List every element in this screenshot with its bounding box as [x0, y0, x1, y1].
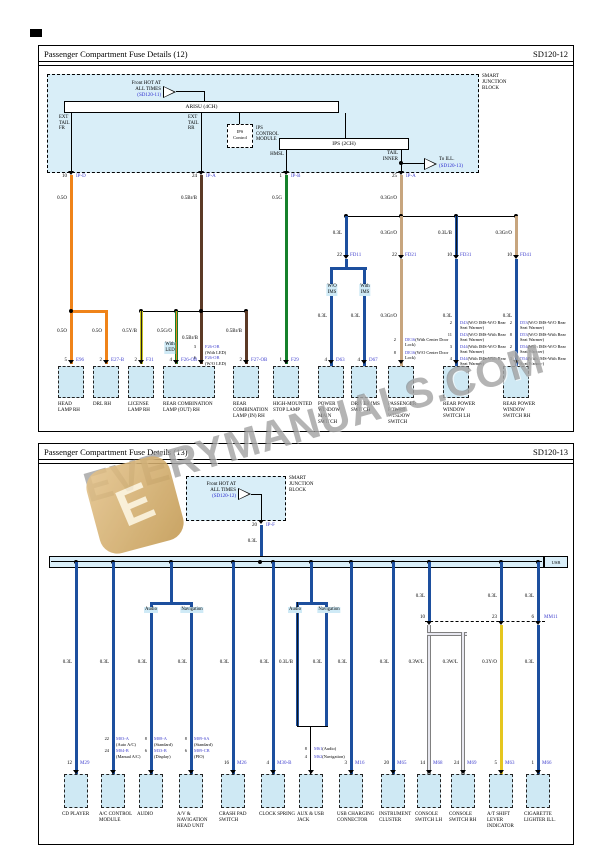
pin-number: 4: [358, 358, 361, 364]
panel-title: Passenger Compartment Fuse Details (12): [44, 49, 188, 59]
condition-note: (Navigation): [322, 754, 344, 759]
sjb-label: BLOCK: [482, 86, 499, 92]
connector-code: F26-OB: [205, 344, 219, 349]
pin-number: 6: [145, 748, 147, 753]
pin-number: 22: [392, 253, 397, 259]
bus-line: [51, 561, 542, 562]
wire-blue-black: [455, 216, 458, 257]
component-name: CONSOLE SWITCH LH: [415, 812, 449, 824]
wire-blue: [75, 562, 78, 774]
component-box: [128, 366, 154, 398]
pin-number: 10: [507, 253, 512, 259]
condition-note: (Standard): [194, 742, 213, 747]
wire-blue: [350, 562, 353, 774]
sjb-label: JUNCTION: [289, 482, 313, 488]
condition-note: LED: [165, 348, 174, 354]
connector-code: FD31: [460, 253, 471, 259]
component-name: USB CHARGING CONNECTOR: [337, 812, 375, 824]
junction-dot: [258, 560, 262, 564]
sjb-label: JUNCTION: [482, 80, 506, 86]
component-name: CD PLAYER: [62, 812, 98, 818]
component-box: [221, 774, 245, 808]
wire-size-label: 0.3L: [525, 594, 534, 600]
pin-number: 22: [337, 253, 342, 259]
sjb-internal-line: [345, 113, 346, 138]
wire-blue: [150, 602, 153, 774]
wire-size-label: 0.3L: [100, 660, 109, 666]
wire-yellow-black: [140, 311, 143, 364]
connector-notch: [361, 360, 367, 364]
condition-note: (W/O IMS-W/O Rear Seat Warmer): [460, 320, 506, 330]
pin-number: 8: [510, 332, 512, 337]
pin-number: 8: [305, 746, 307, 751]
connector-code: FD21: [405, 253, 416, 259]
component-name: AUX & USB JACK: [297, 812, 333, 824]
component-box: [139, 774, 163, 808]
pin-number: 2: [394, 337, 396, 342]
print-corner-mark: [30, 29, 42, 37]
connector-code: FD11: [350, 253, 361, 259]
wire-blue: [325, 602, 328, 726]
condition-note: (PIO): [194, 754, 204, 759]
connector-notch: [198, 360, 204, 364]
panel-code: SD120-13: [533, 447, 568, 457]
pin-number: 22: [105, 736, 109, 741]
condition-highlight: Navigation: [180, 607, 203, 613]
to-ill-page-reference: (SD120-13): [439, 164, 463, 170]
inline-connector-line: [425, 621, 545, 622]
wire-blue: [330, 267, 367, 270]
pin-number: 24: [192, 174, 197, 180]
connector-code: E96: [76, 358, 84, 364]
connector-code: M30-B: [277, 761, 291, 767]
component-name: CIGARETTE LIGHTER ILL.: [524, 812, 562, 824]
connector-notch: [258, 520, 264, 524]
sjb-internal-line: [71, 113, 72, 173]
wire-blue: [150, 602, 193, 605]
pin-number: 4: [267, 761, 270, 767]
wire-size-label: 0.3L: [178, 660, 187, 666]
pin-number: 23: [492, 615, 497, 621]
pin-number: 3: [194, 344, 196, 349]
wire-size-label: 0.5G/O: [157, 329, 172, 335]
component-box: [299, 774, 323, 808]
feed-page-reference: (SD120-12): [212, 494, 236, 500]
component-name: REAR COMBINATION LAMP (OUT) RH: [163, 402, 219, 414]
pin-number: 20: [384, 761, 389, 767]
condition-highlight: W/O IMS: [326, 284, 337, 296]
wire-size-label: 0.3L: [525, 660, 534, 666]
component-box: [381, 774, 405, 808]
connector-option: DE16(W/O Center Door Lock): [405, 350, 451, 361]
component-name: INSTRUMENT CLUSTER: [379, 812, 417, 824]
connector-notch: [283, 360, 289, 364]
wire-size-label: 0.3W/L: [409, 660, 424, 666]
component-box: [64, 774, 88, 808]
connector-code: M26: [237, 761, 246, 767]
wire-blue: [455, 259, 458, 367]
connector-code: M65: [397, 761, 406, 767]
tap-label-hmsl: HMSL: [270, 152, 284, 158]
component-box: [273, 366, 299, 398]
sjb-label: SMART: [482, 74, 499, 80]
component-box: [58, 366, 84, 398]
connector-code: D67: [369, 358, 378, 364]
connector-code: M04-B: [116, 748, 129, 753]
wire-blue: [260, 525, 263, 556]
component-box: [93, 366, 119, 398]
condition-highlight: Audio: [144, 607, 158, 613]
condition-note: With: [165, 342, 174, 348]
connector-code: IP-B: [291, 174, 300, 180]
wire-orange: [70, 310, 107, 313]
pin-number: 1: [532, 761, 535, 767]
pin-number: 4: [325, 358, 328, 364]
pin-number: 12: [67, 761, 72, 767]
condition-note: (With LED): [205, 350, 226, 355]
wire-blue: [363, 267, 366, 367]
pin-number: 6: [532, 615, 535, 621]
wire-tan: [400, 175, 403, 216]
wire-blue: [272, 562, 275, 774]
component-name: REAR POWER WINDOW SWITCH RH: [503, 402, 537, 420]
wire-blue: [537, 562, 540, 621]
connector-code: M03-A: [116, 736, 129, 741]
component-box: [163, 366, 215, 398]
arisu-label: ARISU (4CH): [186, 104, 218, 110]
connector-code: IP-D: [76, 174, 86, 180]
condition-note: (Standard): [154, 742, 173, 747]
connector-code: M29: [80, 761, 89, 767]
pin-number: 20: [252, 523, 257, 529]
connector-code: M63: [505, 761, 514, 767]
wire-blue: [310, 562, 313, 604]
wire-blue: [170, 562, 173, 604]
condition-note: (W/O IMS-W/O Rear Seat Warmer): [520, 320, 566, 330]
component-name: A/V & NAVIGATION HEAD UNIT: [177, 812, 215, 830]
wire-size-label: 0.3L: [138, 660, 147, 666]
condition-note: Audio: [145, 607, 157, 613]
connector-code: M66: [542, 761, 551, 767]
ips-control-box: IPS Control: [227, 124, 253, 148]
connector-option: D43(W/O IMS-With Rear Seat Warmer): [460, 332, 512, 343]
wire-size-label: 0.3L: [416, 594, 425, 600]
pin-number: 1: [280, 358, 283, 364]
connector-code: IP-F: [266, 523, 275, 529]
condition-highlight: With IMS: [359, 284, 370, 296]
feed-line: [261, 494, 262, 521]
connector-code: IP-A: [406, 174, 416, 180]
wire-size-label: 0.3W/L: [443, 660, 458, 666]
condition-highlight: Navigation: [317, 607, 340, 613]
wire-size-label: 0.3L: [380, 660, 389, 666]
wire-blue: [190, 602, 193, 774]
pin-number: 6: [185, 748, 187, 753]
pin-number: 10: [62, 174, 67, 180]
connector-code: M69: [467, 761, 476, 767]
pin-number: 4: [305, 754, 307, 759]
component-name: HEAD LAMP RH: [58, 402, 86, 414]
wire-size-label: 0.3L/B: [438, 231, 452, 237]
wire-size-label: 0.3Gr/O: [380, 314, 397, 320]
component-name: DRL RH: [93, 402, 119, 408]
rejoin-line: [297, 726, 328, 727]
component-box: [526, 774, 550, 808]
wire-size-label: 0.3L: [503, 314, 512, 320]
wire-size-label: 0.5O: [57, 329, 67, 335]
ips-control-box-label: Control: [228, 135, 252, 141]
component-box: [101, 774, 125, 808]
connector-notch: [138, 360, 144, 364]
connector-notch: [398, 360, 404, 364]
wire-orange: [70, 175, 73, 364]
branch-line: [141, 311, 247, 312]
connector-code: F27-OB: [251, 358, 267, 364]
wire-green-orange: [175, 311, 178, 364]
wire-blue: [500, 562, 503, 621]
component-box: [417, 774, 441, 808]
connector-notch: [68, 360, 74, 364]
connector-code: E27-B: [111, 358, 124, 364]
condition-highlight: With LED: [164, 342, 175, 354]
wire-size-label: 0.5Br/B: [226, 329, 242, 335]
wire-size-label: 0.3L: [338, 660, 347, 666]
connector-option: DE16(With Center Door Lock): [405, 337, 451, 348]
panel-header: Passenger Compartment Fuse Details (12) …: [39, 46, 573, 62]
connector-code: D43: [460, 332, 468, 337]
ips-2ch-box: IPS (2CH): [279, 138, 409, 150]
arisu-box: ARISU (4CH): [64, 101, 339, 113]
sjb-internal-line: [239, 113, 240, 124]
feed-label: Front HOT AT: [207, 482, 236, 488]
connector-code: M09-SA: [194, 736, 209, 741]
condition-note: With: [360, 284, 369, 290]
wire-orange: [105, 310, 108, 364]
sjb-label: BLOCK: [289, 488, 306, 494]
pin-number: 5: [495, 761, 498, 767]
wire-blue: [428, 562, 431, 621]
feed-label: ALL TIMES: [135, 87, 161, 93]
branch-line: [346, 216, 517, 217]
wire-size-label: 0.3L: [351, 314, 360, 320]
feed-line: [251, 494, 261, 495]
connector-code: F26-OB: [181, 358, 197, 364]
condition-note: (Manual A/C): [116, 754, 141, 759]
pin-number: 2: [450, 320, 452, 325]
pin-number: 24: [454, 761, 459, 767]
tap-label-ext-tail-fr: FR: [59, 126, 65, 132]
pin-number: 4: [170, 358, 173, 364]
wire-size-label: 0.3Gr/O: [380, 231, 397, 237]
pin-number: 10: [447, 253, 452, 259]
junction-dot: [199, 309, 203, 313]
feed-line: [204, 91, 205, 101]
wire-tan: [400, 259, 403, 367]
connector-code: M08-A: [154, 736, 167, 741]
smart-junction-block: [47, 74, 479, 173]
ips-module-label: MODULE: [256, 137, 277, 143]
wire-size-label: 0.3L: [63, 660, 72, 666]
connector-code: D63: [336, 358, 345, 364]
feed-page-reference: (SD120-11): [137, 93, 161, 99]
connector-notch: [173, 360, 179, 364]
wire-size-label: 0.3L: [333, 231, 342, 237]
pin-number: 11: [448, 332, 452, 337]
condition-note: (Display): [154, 754, 171, 759]
pin-number: 3: [345, 761, 348, 767]
panel-code: SD120-12: [533, 49, 568, 59]
pin-number: 2: [240, 358, 243, 364]
wire-yellow: [500, 625, 503, 774]
sjb-label: SMART: [289, 476, 306, 482]
pin-number: 24: [105, 748, 109, 753]
component-name: AUDIO: [137, 812, 173, 818]
connector-code: DE16: [405, 337, 415, 342]
connector-option: M62(Navigation): [314, 754, 345, 759]
wire-size-label: 0.5Br/B: [182, 336, 198, 342]
wire-size-label: 0.3L: [313, 660, 322, 666]
connector-code: M16: [355, 761, 364, 767]
condition-note: IMS: [360, 290, 369, 296]
pin-number: 2: [100, 358, 103, 364]
wire-size-label: 0.3L: [318, 314, 327, 320]
connector-code: DE16: [405, 350, 415, 355]
wire-size-label: 0.3L: [248, 539, 257, 545]
connector-code: F29: [291, 358, 299, 364]
sjb-internal-line: [401, 163, 424, 164]
component-box: [233, 366, 259, 398]
connector-option: M61(Audio): [314, 746, 336, 751]
connector-code: D43: [460, 320, 468, 325]
wire-size-label: 0.3L: [488, 594, 497, 600]
pin-number: 8: [185, 736, 187, 741]
wire-size-label: 0.5G: [272, 196, 282, 202]
pin-number: 3: [450, 344, 452, 349]
component-name: CRASH PAD SWITCH: [219, 812, 255, 824]
wire-size-label: 0.5O: [92, 329, 102, 335]
watermark-logo-letter: E: [107, 471, 162, 540]
header-rule: [39, 65, 573, 66]
connector-code: MM11: [544, 615, 558, 621]
wire-size-label: 0.3Gr/O: [380, 196, 397, 202]
connector-code: M09-CB: [194, 748, 210, 753]
feed-label: Front HOT AT: [132, 81, 161, 87]
connector-code: F31: [146, 358, 154, 364]
wire-size-label: 0.5Y/B: [122, 329, 137, 335]
pin-number: 5: [65, 358, 68, 364]
wire-blue: [112, 562, 115, 774]
wire-tan: [515, 216, 518, 257]
component-box: [451, 774, 475, 808]
wire-blue: [392, 562, 395, 774]
wire-blue: [345, 259, 348, 267]
connector-code: FD41: [520, 253, 531, 259]
connector-code: F26-OB: [205, 355, 219, 360]
connector-notch: [243, 360, 249, 364]
wire-tan: [400, 216, 403, 257]
wire-blue: [232, 562, 235, 774]
wire-size-label: 0.3Y/O: [482, 660, 497, 666]
pin-number: 2: [510, 320, 512, 325]
connector-option: D43(W/O IMS-W/O Rear Seat Warmer): [460, 320, 512, 331]
condition-note: IMS: [327, 290, 336, 296]
connector-notch: [328, 360, 334, 364]
wire-size-label: 0.3Gr/O: [495, 231, 512, 237]
connector-code: M68: [433, 761, 442, 767]
connector-code: D44: [460, 344, 468, 349]
wire-size-label: 0.3L/B: [279, 660, 293, 666]
condition-note: Navigation: [318, 607, 339, 613]
component-box: [261, 774, 285, 808]
feed-line: [176, 91, 204, 92]
pin-number: 2: [135, 358, 138, 364]
pin-number: 8: [394, 350, 396, 355]
wire-blue-black: [296, 602, 299, 726]
pin-number: 16: [224, 761, 229, 767]
ips-2ch-label: IPS (2CH): [332, 141, 355, 147]
tap-label-ext-tail-rr: RR: [188, 126, 194, 132]
wire-size-label: 0.3L: [260, 660, 269, 666]
manual-page: Passenger Compartment Fuse Details (12) …: [0, 0, 612, 866]
condition-note: (W/O IMS-With Rear Seat Warmer): [460, 332, 506, 342]
condition-highlight: Audio: [288, 607, 302, 613]
condition-note: (W/O LED): [205, 361, 226, 366]
feed-label: ALL TIMES: [210, 488, 236, 494]
condition-note: Navigation: [181, 607, 202, 613]
wire-gray: [461, 632, 465, 774]
pin-number: 1: [280, 174, 283, 180]
pin-number: 14: [420, 761, 425, 767]
connector-code: IP-A: [206, 174, 216, 180]
component-name: CONSOLE SWITCH RH: [449, 812, 483, 824]
to-ill-label: To ILL.: [439, 157, 454, 163]
wire-size-label: 0.5Br/B: [181, 196, 197, 202]
sjb-internal-line: [286, 150, 287, 173]
connector-code: M33-B: [154, 748, 167, 753]
bus-end-box: USB: [544, 556, 568, 568]
condition-note: (Audio): [322, 746, 336, 751]
component-name: A/T SHIFT LEVER INDICATOR: [487, 812, 523, 830]
component-name: LICENSE LAMP RH: [128, 402, 158, 414]
condition-note: Audio: [289, 607, 301, 613]
wire-size-label: 0.3L: [443, 314, 452, 320]
illumination-bus: [49, 556, 544, 568]
wire-size-label: 0.5O: [57, 196, 67, 202]
wire-size-label: 0.3L: [220, 660, 229, 666]
wire-blue: [296, 602, 328, 605]
condition-note: W/O: [327, 284, 336, 290]
bus-end-label: USB: [552, 560, 561, 565]
wire-brown: [200, 175, 203, 364]
pin-number: 10: [420, 615, 425, 621]
pin-number: 25: [392, 174, 397, 180]
component-box: [179, 774, 203, 808]
wire-green: [285, 175, 288, 364]
wire-gray: [427, 625, 431, 774]
component-name: A/C CONTROL MODULE: [99, 812, 135, 824]
tap-label-tail-inner: INNER: [383, 157, 398, 163]
wire-blue: [345, 216, 348, 257]
junction-dot: [69, 309, 73, 313]
connector-option: D53(W/O IMS-W/O Rear Seat Warmer): [520, 320, 572, 331]
condition-note: (Auto A/C): [116, 742, 136, 747]
connector-notch: [103, 360, 109, 364]
component-name: CLOCK SPRING: [259, 812, 295, 818]
pin-number: 8: [145, 736, 147, 741]
wire-blue: [330, 267, 333, 367]
wire-brown: [245, 311, 248, 364]
component-box: [339, 774, 363, 808]
